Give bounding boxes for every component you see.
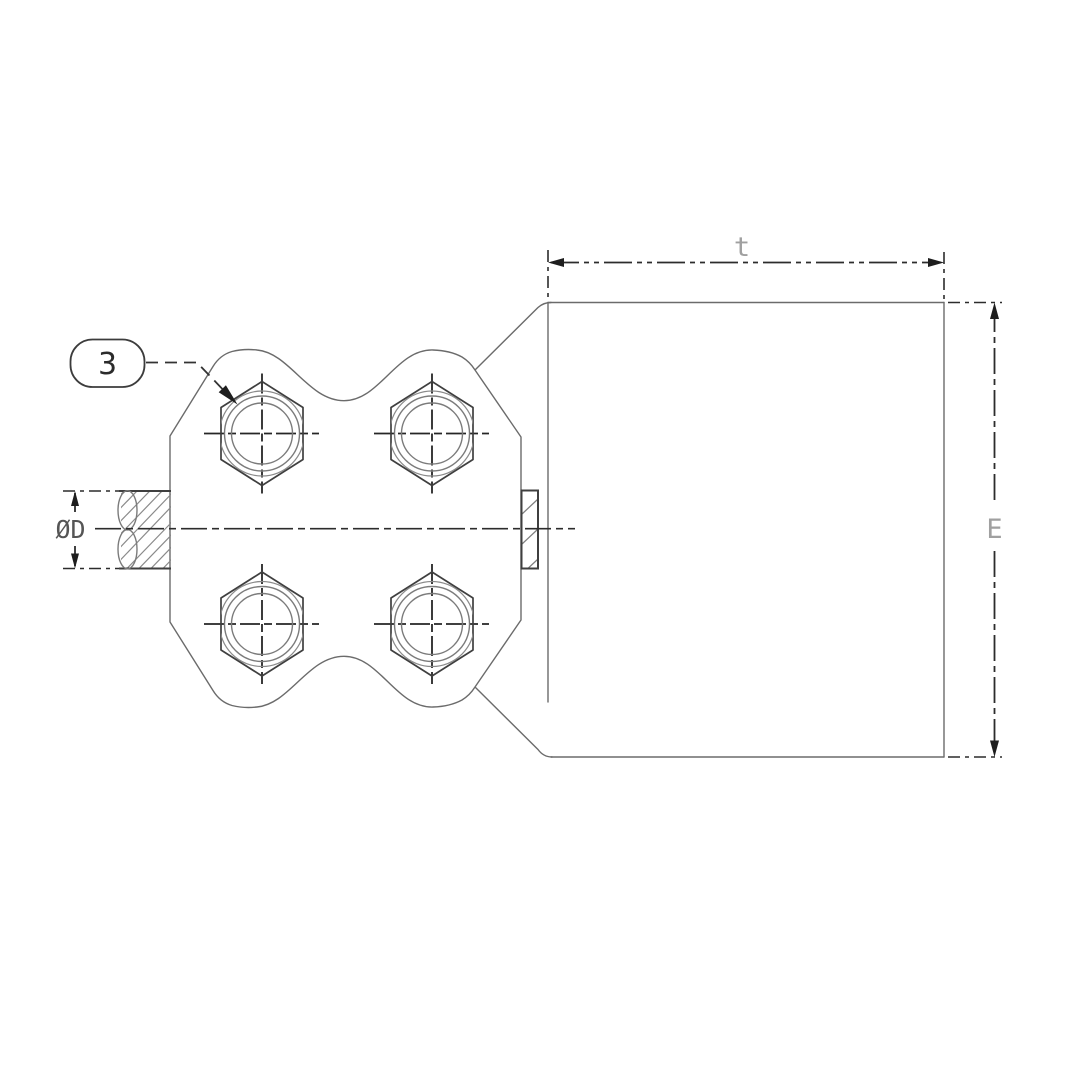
dimension-width-t: t [548, 232, 944, 301]
transition-top [475, 303, 551, 371]
dim-height-label: E [986, 514, 1002, 545]
strand-end-upper [118, 491, 137, 530]
arrow-down [990, 741, 999, 758]
dimension-diameter-D: ØD [55, 491, 119, 569]
arrow-down [71, 554, 79, 569]
transition-bottom [475, 687, 552, 757]
dim-width-label: t [734, 232, 750, 263]
dimension-height-E: E [948, 303, 1003, 758]
connector-clamp-drawing: t E ØD 3 [0, 0, 1080, 1080]
strand-end-lower [118, 530, 137, 569]
barrel-body [548, 303, 944, 758]
arrow-up [990, 303, 999, 320]
balloon-number: 3 [98, 347, 117, 382]
arrow-right [928, 258, 944, 267]
arrow-up [71, 491, 79, 506]
technical-drawing-canvas: t E ØD 3 [0, 0, 1080, 1080]
dim-diameter-label: ØD [55, 515, 85, 544]
arrow-left [548, 258, 564, 267]
